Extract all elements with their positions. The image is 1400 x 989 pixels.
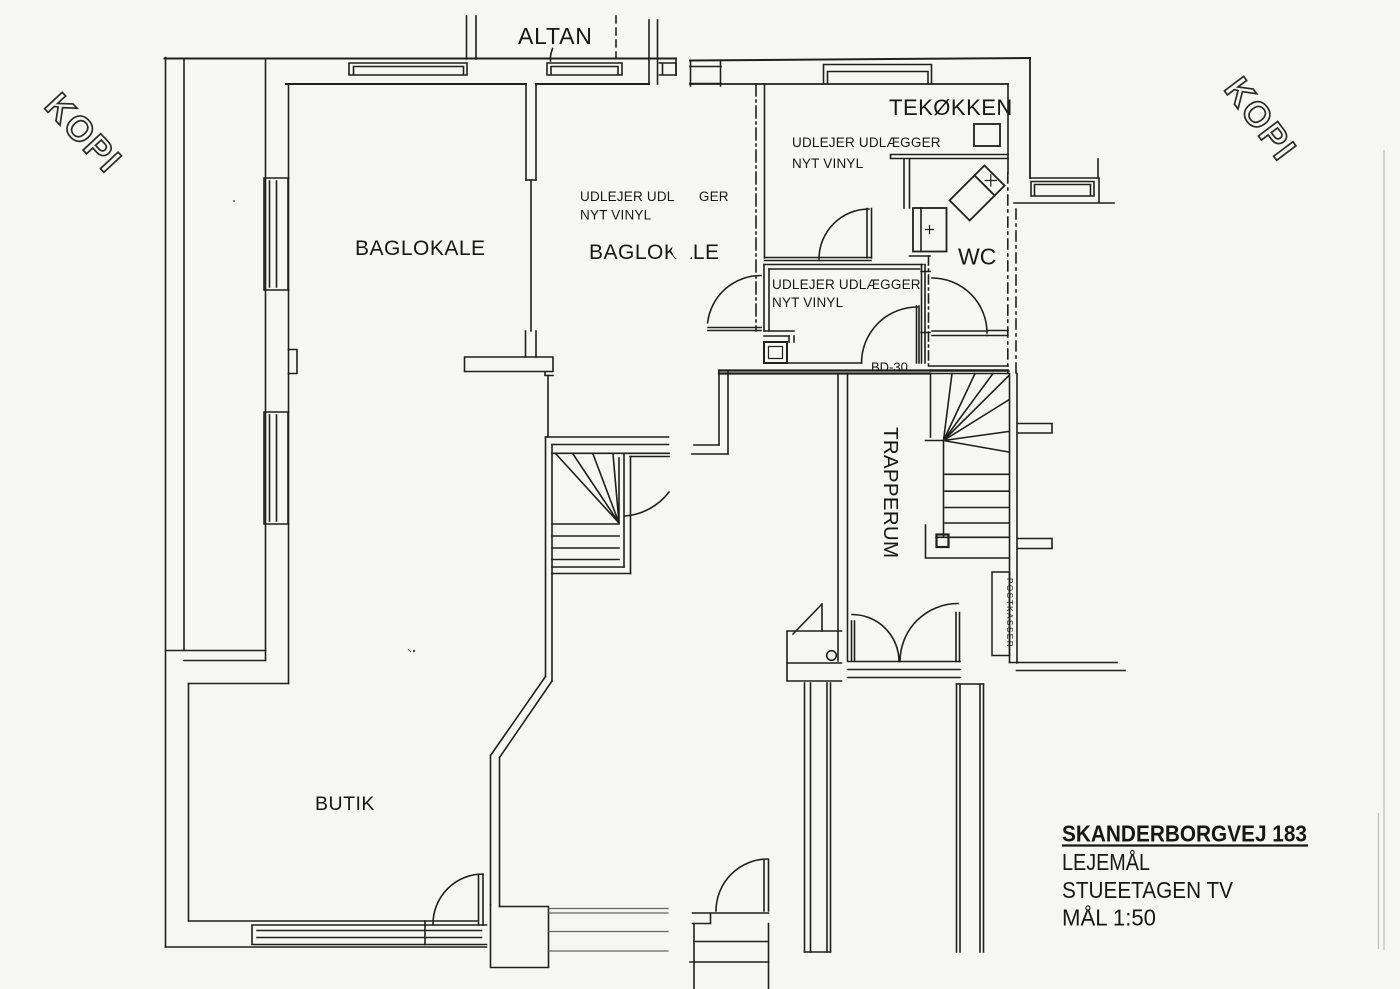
svg-text:NYT VINYL: NYT VINYL: [772, 295, 844, 310]
svg-text:LEJEMÅL: LEJEMÅL: [1062, 848, 1150, 875]
svg-text:UDLEJER UDLÆGGER: UDLEJER UDLÆGGER: [580, 189, 729, 204]
svg-text:NYT VINYL: NYT VINYL: [580, 208, 652, 223]
svg-text:POSTKASSER: POSTKASSER: [1005, 578, 1014, 648]
svg-text:TRAPPERUM: TRAPPERUM: [879, 427, 902, 558]
svg-text:UDLEJER UDLÆGGER: UDLEJER UDLÆGGER: [792, 135, 941, 150]
svg-text:UDLEJER UDLÆGGER: UDLEJER UDLÆGGER: [772, 277, 921, 292]
svg-text:BUTIK: BUTIK: [315, 793, 375, 815]
svg-text:ALTAN: ALTAN: [518, 23, 593, 49]
svg-text:BAGLOKALE: BAGLOKALE: [355, 237, 486, 260]
svg-text:WC: WC: [958, 244, 996, 270]
svg-text:BAGLOKALE: BAGLOKALE: [589, 241, 720, 264]
svg-text:MÅL 1:50: MÅL 1:50: [1062, 904, 1156, 931]
svg-text:SKANDERBORGVEJ 183: SKANDERBORGVEJ 183: [1062, 821, 1307, 847]
svg-text:BD-30: BD-30: [871, 360, 908, 375]
svg-text:STUEETAGEN TV: STUEETAGEN TV: [1062, 877, 1234, 903]
svg-text:NYT VINYL: NYT VINYL: [792, 156, 864, 171]
svg-text:TEKØKKEN: TEKØKKEN: [889, 95, 1013, 120]
